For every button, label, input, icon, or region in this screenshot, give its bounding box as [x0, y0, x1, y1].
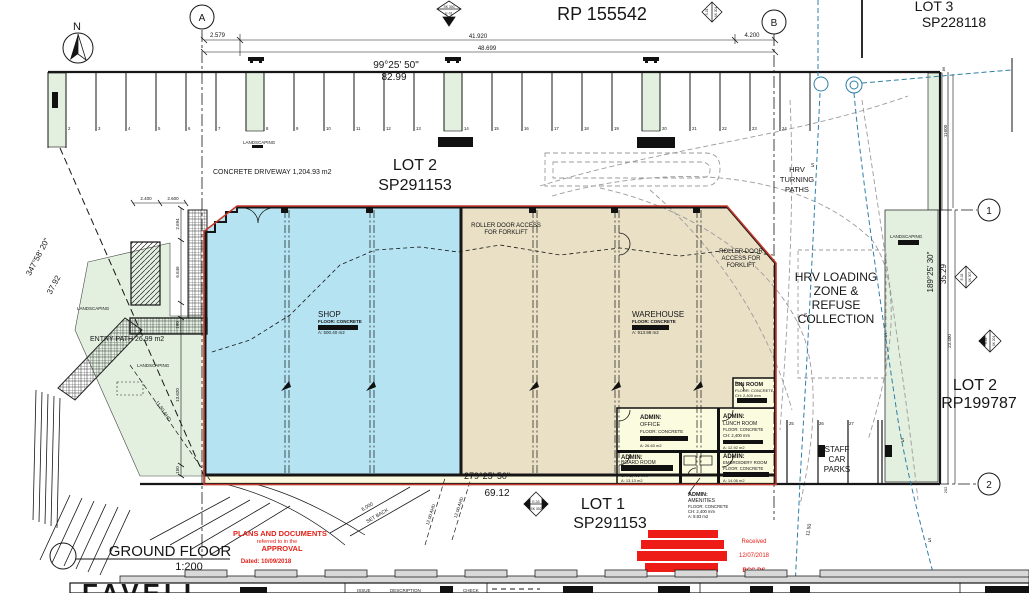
- check-header: CHECK: [463, 588, 479, 593]
- svg-text:86: 86: [941, 66, 946, 71]
- hrv-turning-label: HRV: [789, 165, 805, 174]
- svg-text:PATHS: PATHS: [785, 185, 809, 194]
- stall-number: 18: [584, 126, 589, 131]
- svg-text:PLANS AND DOCUMENTS: PLANS AND DOCUMENTS: [233, 529, 327, 538]
- description-header: DESCRIPTION: [390, 588, 421, 593]
- svg-text:E-01: E-01: [445, 12, 452, 16]
- stall-number: 17: [554, 126, 559, 131]
- svg-text:SK 300: SK 300: [443, 5, 454, 9]
- grid-a: A: [199, 13, 206, 24]
- svg-text:82.99: 82.99: [381, 72, 406, 83]
- svg-text:CH: 2,400 mm: CH: 2,400 mm: [723, 433, 751, 438]
- dim-2579: 2.579: [210, 33, 226, 39]
- dim-48699: 48.699: [478, 46, 497, 52]
- stall-number: 13: [416, 126, 421, 131]
- south-strip: [205, 476, 617, 484]
- svg-text:A: 8.83 m2: A: 8.83 m2: [688, 514, 709, 519]
- svg-text:69.12: 69.12: [484, 488, 509, 499]
- svg-text:FORKLIFT: FORKLIFT: [726, 263, 755, 269]
- stall-number: 11: [356, 126, 361, 131]
- svg-text:LANDSCAPING: LANDSCAPING: [137, 363, 170, 368]
- stall-number: 10: [326, 126, 331, 131]
- svg-text:SP228118: SP228118: [922, 14, 987, 30]
- redacted-stamp-seal: [637, 530, 727, 572]
- svg-text:ZONE &: ZONE &: [814, 284, 859, 298]
- svg-text:TURNING: TURNING: [780, 175, 814, 184]
- lot3-label: LOT 3: [915, 0, 954, 14]
- stall-number: 22: [722, 126, 727, 131]
- entry-path-label: ENTRY PATH 26.99 m2: [90, 336, 164, 343]
- lot2-label: LOT 2: [393, 157, 437, 174]
- svg-text:2.400: 2.400: [140, 196, 152, 201]
- rp-title: RP 155542: [557, 4, 647, 24]
- hrv-loading-label: HRV LOADING: [795, 270, 877, 284]
- grid-b: B: [771, 18, 778, 29]
- svg-text:FLOOR: CONCRETE: FLOOR: CONCRETE: [723, 427, 763, 432]
- svg-text:SP291153: SP291153: [378, 177, 452, 194]
- svg-text:2.600: 2.600: [167, 196, 179, 201]
- driveway-label: CONCRETE DRIVEWAY 1,204.93 m2: [213, 169, 332, 176]
- building-fills: [205, 207, 775, 484]
- shop-label: SHOP: [318, 310, 341, 319]
- svg-text:PARKS: PARKS: [824, 465, 851, 474]
- svg-text:S-01: S-01: [705, 8, 709, 15]
- lunch-label: ADMIN:: [723, 414, 745, 420]
- staff-parks-label: STAFF: [825, 445, 850, 454]
- bearing-bottom: 279°25' 50": [464, 471, 510, 481]
- svg-text:FLOOR: CONCRETE: FLOOR: CONCRETE: [723, 466, 763, 471]
- svg-text:12/07/2018: 12/07/2018: [739, 553, 770, 559]
- stall-number: 16: [524, 126, 529, 131]
- svg-text:SK 201: SK 201: [714, 7, 718, 18]
- bearing-top: 99°25' 50": [373, 60, 419, 71]
- svg-text:SK 302: SK 302: [530, 507, 541, 511]
- stall-number: 21: [692, 126, 697, 131]
- stall-number: 24: [782, 126, 787, 131]
- stall-number: 12: [386, 126, 391, 131]
- svg-text:A: 26.63 m2: A: 26.63 m2: [640, 443, 662, 448]
- stall-number: 15: [494, 126, 499, 131]
- lot2-right-label: LOT 2: [953, 377, 997, 394]
- svg-text:6.646: 6.646: [175, 266, 180, 278]
- svg-text:EMBROIDERY ROOM: EMBROIDERY ROOM: [723, 460, 768, 465]
- svg-text:LANDSCAPING: LANDSCAPING: [890, 234, 923, 239]
- staff-stall-number: 25: [789, 421, 794, 426]
- svg-text:2.694: 2.694: [175, 218, 180, 230]
- svg-text:APPROVAL: APPROVAL: [261, 544, 303, 553]
- svg-text:SP291153: SP291153: [573, 515, 647, 532]
- svg-text:FOR FORKLIFT: FOR FORKLIFT: [484, 230, 528, 236]
- grid-1: 1: [986, 206, 992, 217]
- svg-text:A: 14.06 m2: A: 14.06 m2: [723, 478, 745, 483]
- stall-number: 20: [662, 126, 667, 131]
- svg-text:SK 201: SK 201: [992, 336, 996, 347]
- svg-text:Dated: 10/09/2018: Dated: 10/09/2018: [241, 559, 292, 565]
- grid-2: 2: [986, 480, 992, 491]
- warehouse-label: WAREHOUSE: [632, 310, 684, 319]
- svg-text:RP199787: RP199787: [941, 395, 1017, 412]
- lot1-label: LOT 1: [581, 496, 625, 513]
- svg-text:FLOOR: CONCRETE: FLOOR: CONCRETE: [640, 429, 683, 434]
- svg-text:OFFICE: OFFICE: [640, 422, 660, 428]
- svg-text:CAR: CAR: [829, 455, 846, 464]
- dim-4200: 4.200: [744, 33, 760, 39]
- landscaping-label: LANDSCAPING: [77, 306, 110, 311]
- roller-door-label-1: ROLLER DOOR ACCESS: [471, 223, 541, 229]
- svg-text:190: 190: [175, 321, 180, 329]
- svg-text:S-02: S-02: [984, 337, 988, 344]
- svg-text:FLOOR: CONCRETE: FLOOR: CONCRETE: [632, 319, 676, 324]
- hatched-structure: [131, 242, 160, 305]
- svg-text:13.620: 13.620: [175, 388, 180, 402]
- svg-text:A: 913.98 m2: A: 913.98 m2: [632, 330, 659, 335]
- title-block: FAVELL ISSUE DESCRIPTION CHECK: [70, 570, 1029, 593]
- svg-text:E-02: E-02: [960, 273, 964, 280]
- svg-text:SK 307: SK 307: [968, 272, 972, 283]
- drawing-title-text: GROUND FLOOR: [109, 543, 232, 560]
- svg-text:23.400: 23.400: [947, 334, 952, 348]
- svg-text:LANDSCAPING: LANDSCAPING: [243, 140, 276, 145]
- svg-text:FLOOR: CONCRETE: FLOOR: CONCRETE: [318, 319, 362, 324]
- staff-stall-number: 27: [849, 421, 854, 426]
- stall-number: 19: [614, 126, 619, 131]
- site-plan-svg: S S S S S N A B 1 2 SK 300 E-01 S-01 SK …: [0, 0, 1029, 593]
- svg-text:E-03: E-03: [532, 500, 539, 504]
- svg-text:BOARD ROOM: BOARD ROOM: [621, 460, 656, 466]
- svg-text:A: 12.92 m2: A: 12.92 m2: [723, 445, 745, 450]
- bearing-right: 189°25' 30": [926, 251, 935, 292]
- svg-text:COLLECTION: COLLECTION: [798, 312, 875, 326]
- dim-41920: 41.920: [469, 34, 488, 40]
- issue-header: ISSUE: [357, 588, 371, 593]
- svg-text:CH: 2,400 mm: CH: 2,400 mm: [735, 393, 761, 398]
- staff-stall-number: 26: [819, 421, 824, 426]
- site-plan-canvas: S S S S S N A B 1 2 SK 300 E-01 S-01 SK …: [0, 0, 1029, 593]
- north-label: N: [73, 21, 81, 33]
- stall-number: 23: [752, 126, 757, 131]
- svg-text:A: 500.40 m2: A: 500.40 m2: [318, 330, 345, 335]
- stall-number: 14: [464, 126, 469, 131]
- roller-door-label-2: ROLLER DOOR: [719, 249, 763, 255]
- svg-text:11600: 11600: [943, 124, 948, 137]
- svg-text:A: 13.13 m2: A: 13.13 m2: [621, 478, 643, 483]
- shop-area: [205, 207, 461, 476]
- svg-text:REFUSE: REFUSE: [812, 298, 861, 312]
- svg-text:150: 150: [175, 466, 180, 474]
- svg-text:35.29: 35.29: [939, 263, 948, 284]
- office-label: ADMIN:: [640, 415, 662, 421]
- svg-text:202: 202: [943, 486, 948, 493]
- svg-text:ACCESS FOR: ACCESS FOR: [721, 256, 761, 262]
- firm-name: FAVELL: [82, 578, 204, 593]
- svg-text:Received: Received: [741, 539, 766, 545]
